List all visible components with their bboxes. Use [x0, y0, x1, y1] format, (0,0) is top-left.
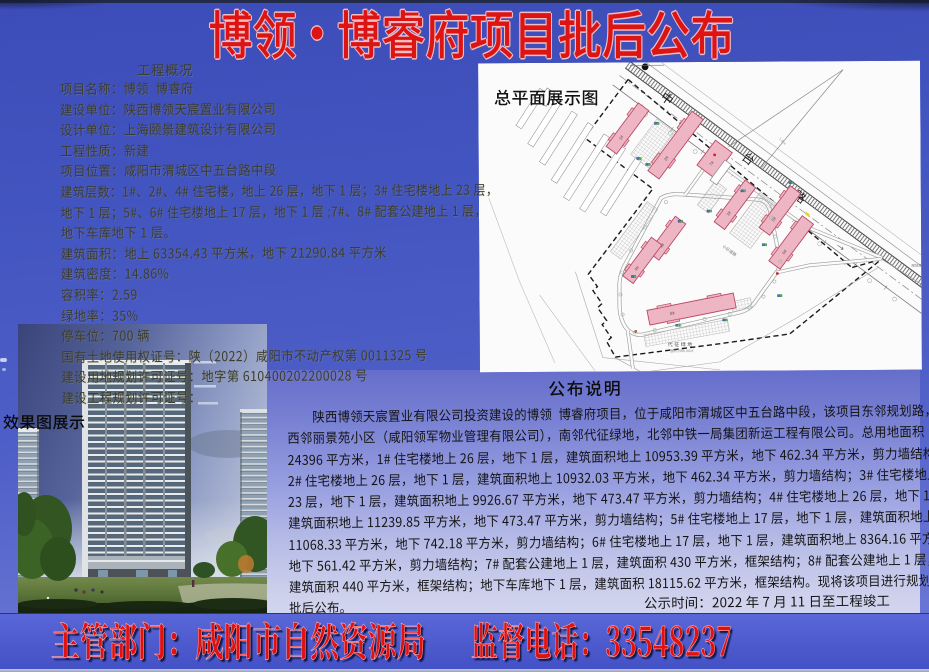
svg-text:规划道路红线: 规划道路红线 — [911, 263, 922, 268]
svg-text:面积1986.00㎡: 面积1986.00㎡ — [670, 348, 694, 354]
svg-text:代征绿地: 代征绿地 — [668, 341, 694, 348]
